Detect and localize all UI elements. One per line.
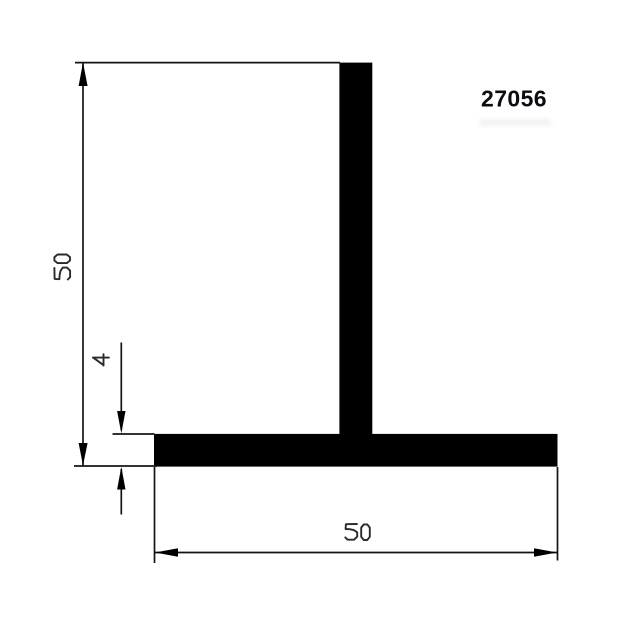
svg-text:27056: 27056	[481, 86, 547, 112]
